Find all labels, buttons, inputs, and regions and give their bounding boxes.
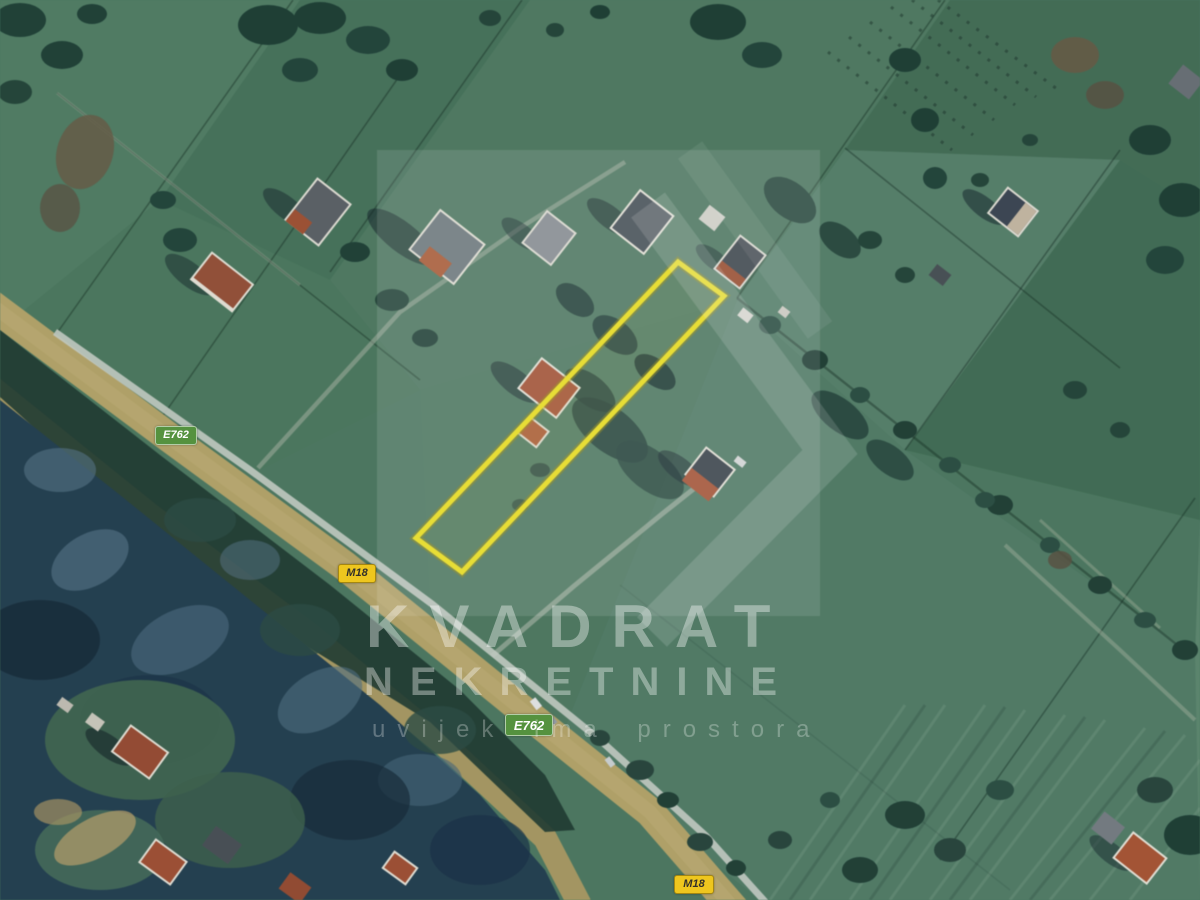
road-badge-e762-upper: E762 (155, 426, 197, 445)
satellite-imagery (0, 0, 1200, 900)
road-badge-m18-lower: M18 (674, 875, 714, 894)
road-badge-e762-lower: E762 (505, 714, 553, 736)
road-badge-m18-upper: M18 (338, 564, 376, 583)
watermark-logo (377, 150, 830, 632)
map-viewport[interactable]: E762 M18 E762 M18 KVADRAT NEKRETNINE uvi… (0, 0, 1200, 900)
